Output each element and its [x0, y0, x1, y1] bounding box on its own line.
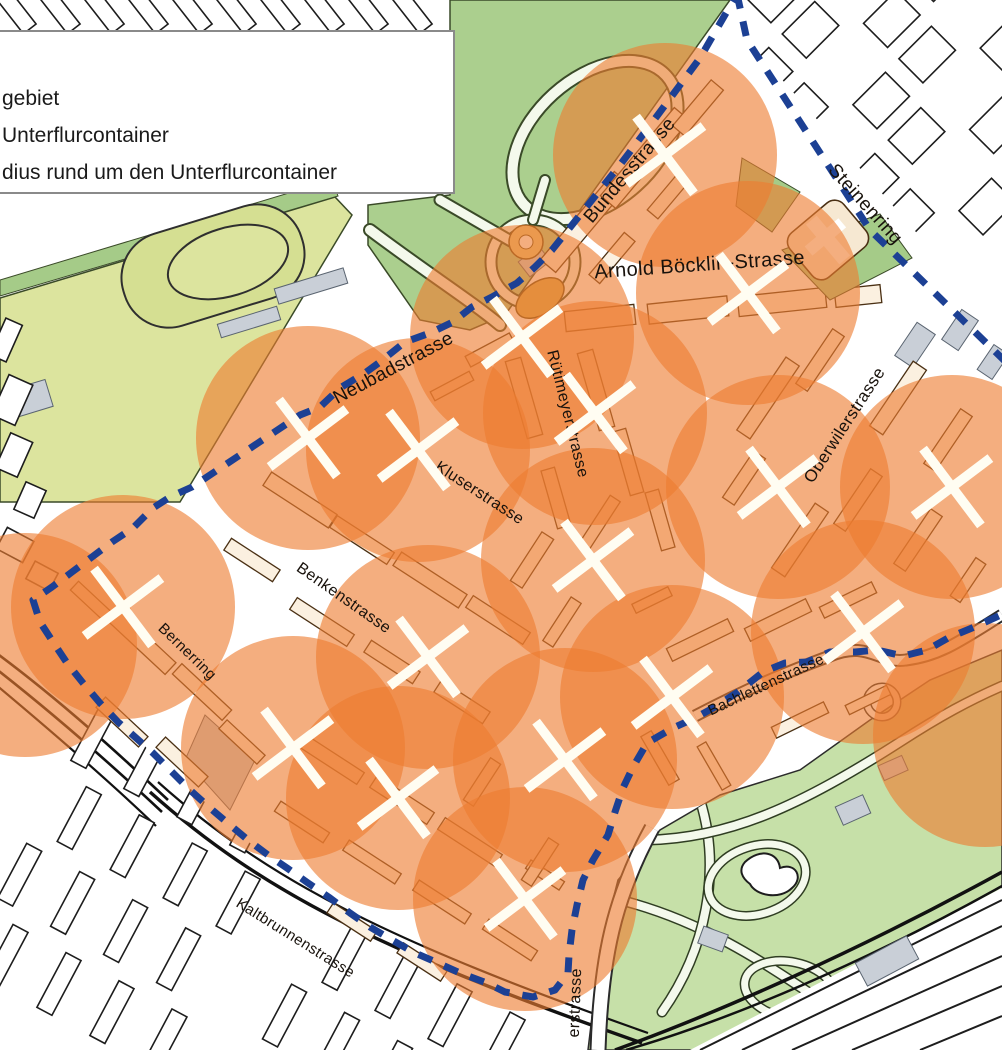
legend-item-label: dius rund um den Unterflurcontainer [2, 161, 337, 184]
legend: gebiet Unterflurcontainer dius rund um d… [0, 31, 454, 193]
map-screenshot: BundesstrasseSteinenringArnold Böcklin-S… [0, 0, 1002, 1050]
map-canvas: BundesstrasseSteinenringArnold Böcklin-S… [0, 0, 1002, 1050]
legend-item-label: Unterflurcontainer [2, 124, 169, 147]
legend-item-label: gebiet [2, 87, 59, 110]
street-label-erstrasse: erstrasse [566, 968, 585, 1038]
